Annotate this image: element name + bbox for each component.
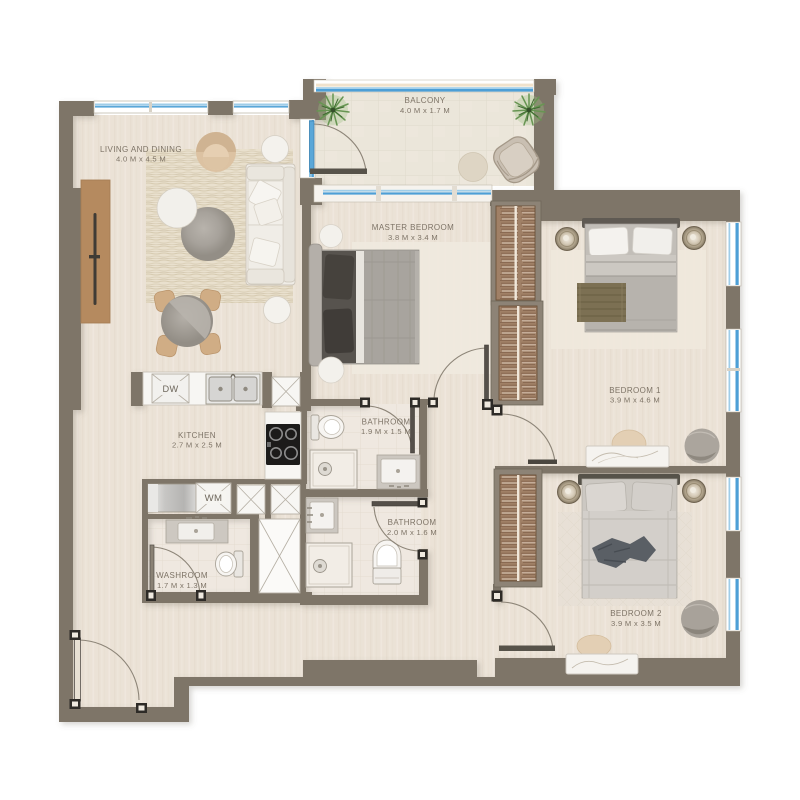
svg-text:2.7 M x 2.5 M: 2.7 M x 2.5 M xyxy=(172,441,222,450)
svg-text:BEDROOM 2: BEDROOM 2 xyxy=(610,609,662,618)
svg-text:LIVING AND DINING: LIVING AND DINING xyxy=(100,145,182,154)
svg-text:3.8 M x 3.4 M: 3.8 M x 3.4 M xyxy=(388,233,438,242)
svg-text:3.9 M x 3.5 M: 3.9 M x 3.5 M xyxy=(611,619,661,628)
svg-text:1.9 M x 1.5 M: 1.9 M x 1.5 M xyxy=(361,427,411,436)
svg-text:WM: WM xyxy=(205,493,223,504)
svg-text:BATHROOM: BATHROOM xyxy=(362,418,411,427)
svg-text:4.0 M x 4.5 M: 4.0 M x 4.5 M xyxy=(116,155,166,164)
svg-text:MASTER BEDROOM: MASTER BEDROOM xyxy=(372,223,455,232)
svg-text:2.0 M x 1.6 M: 2.0 M x 1.6 M xyxy=(387,528,437,537)
svg-text:DW: DW xyxy=(163,384,179,394)
svg-text:KITCHEN: KITCHEN xyxy=(178,431,216,440)
svg-text:BEDROOM 1: BEDROOM 1 xyxy=(609,386,661,395)
svg-text:1.7 M x 1.3 M: 1.7 M x 1.3 M xyxy=(157,581,207,590)
svg-text:WASHROOM: WASHROOM xyxy=(156,571,208,580)
svg-text:4.0 M x 1.7 M: 4.0 M x 1.7 M xyxy=(400,106,450,115)
svg-text:3.9 M x 4.6 M: 3.9 M x 4.6 M xyxy=(610,396,660,405)
svg-text:BALCONY: BALCONY xyxy=(404,96,445,105)
svg-text:BATHROOM: BATHROOM xyxy=(388,518,437,527)
